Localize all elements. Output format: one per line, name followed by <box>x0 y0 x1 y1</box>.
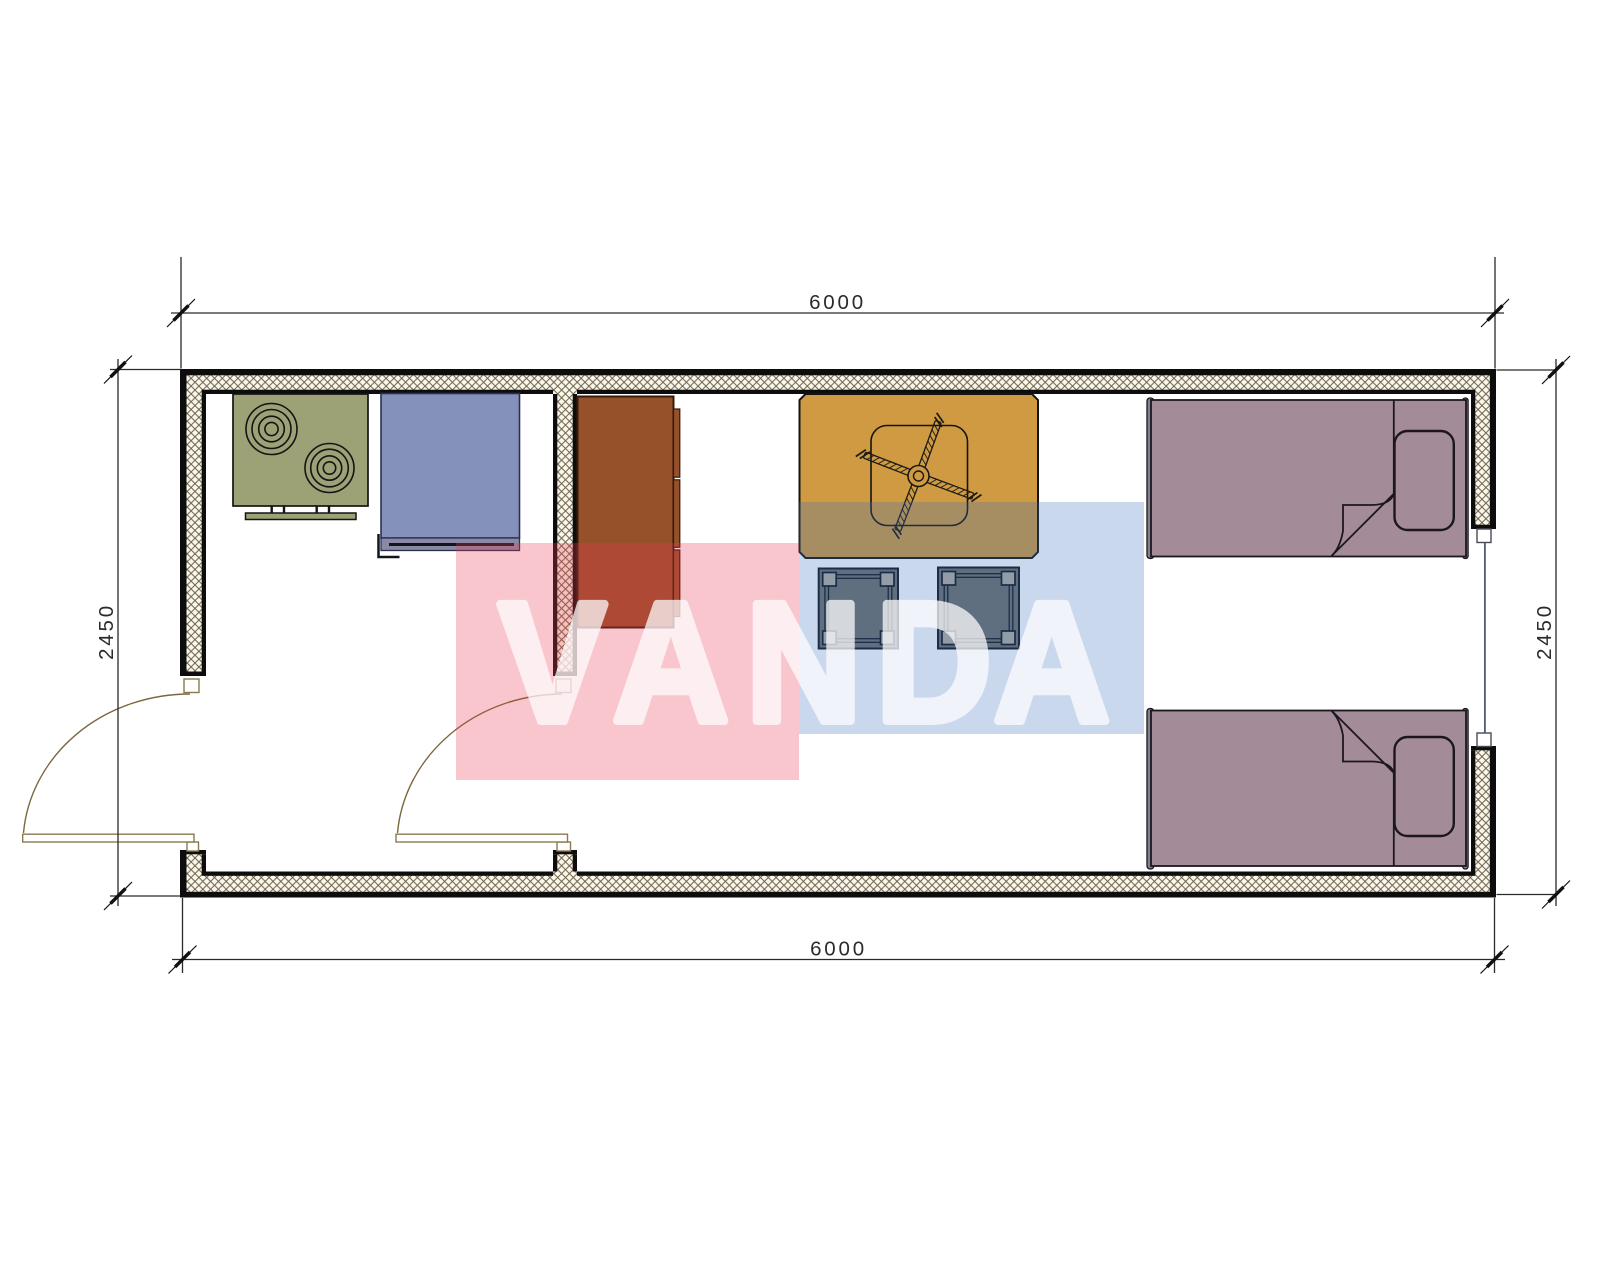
svg-text:2450: 2450 <box>95 603 118 660</box>
svg-text:V: V <box>499 568 606 757</box>
svg-text:A: A <box>994 568 1110 757</box>
svg-text:2450: 2450 <box>1533 603 1556 660</box>
svg-text:6000: 6000 <box>810 938 867 961</box>
svg-text:N: N <box>746 568 862 757</box>
svg-text:6000: 6000 <box>809 291 866 314</box>
svg-text:A: A <box>613 568 729 757</box>
svg-text:D: D <box>876 568 992 757</box>
